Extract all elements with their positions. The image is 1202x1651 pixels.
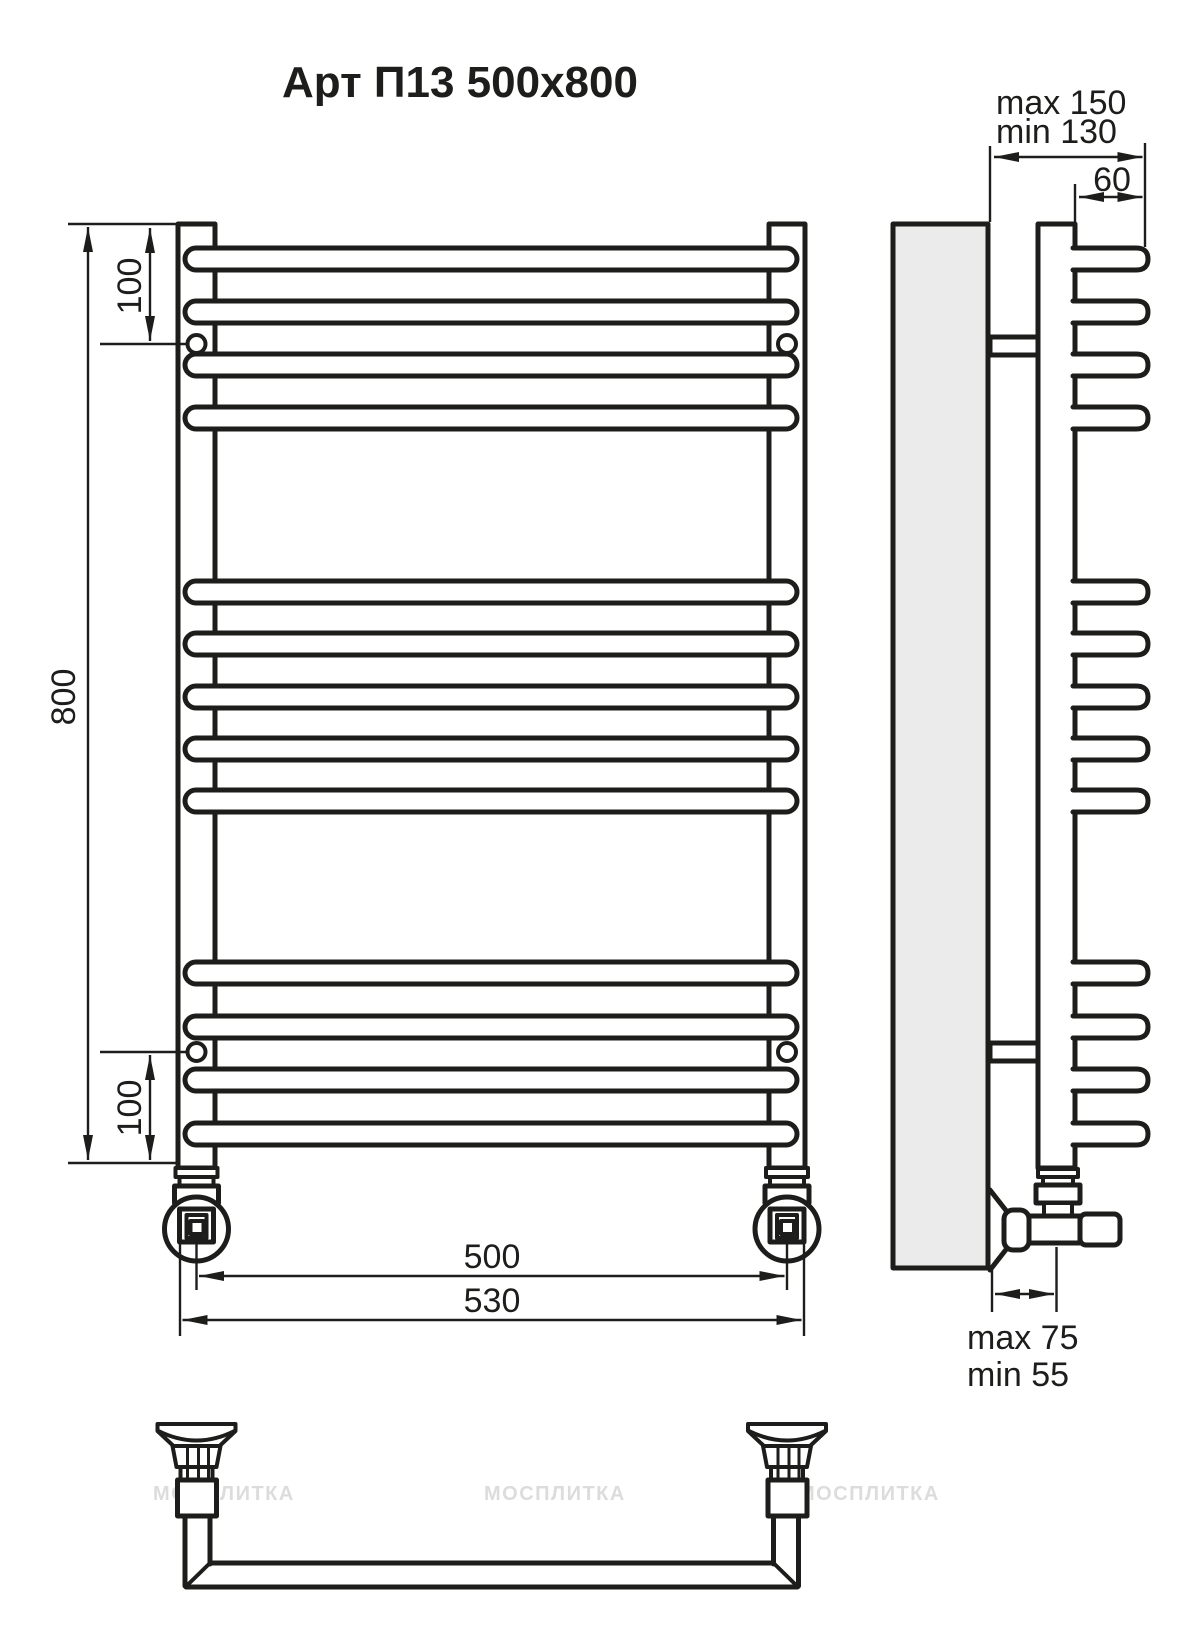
dim-axis-label: 500	[464, 1238, 521, 1276]
escutcheon-slant-bottom	[990, 1247, 1008, 1270]
front-bar	[185, 633, 797, 655]
bv-valve	[173, 1446, 221, 1467]
valve-insert-square	[191, 1221, 204, 1234]
dim-height-label: 800	[45, 669, 83, 726]
side-bar-fill	[1064, 248, 1148, 270]
front-bar	[185, 248, 797, 270]
valve-insert-square	[781, 1221, 794, 1234]
side-valve-nut	[1036, 1185, 1080, 1203]
side-view	[893, 224, 1148, 1270]
bv-miter	[774, 1563, 797, 1585]
side-bar-fill	[1064, 1123, 1148, 1145]
mount-hole-bottom-left	[188, 1043, 206, 1061]
front-bar	[185, 354, 797, 376]
front-bar	[185, 962, 797, 984]
front-bar	[185, 1123, 797, 1145]
front-bar	[185, 301, 797, 323]
bv-valve	[763, 1446, 811, 1467]
front-bar	[185, 407, 797, 429]
wall-bracket-bottom	[990, 1043, 1040, 1061]
mount-hole-bottom-right	[778, 1043, 796, 1061]
side-bar-fill	[1064, 962, 1148, 984]
front-bars	[185, 248, 797, 1145]
escutcheon-face	[1004, 1210, 1029, 1250]
side-bar-fill	[1064, 301, 1148, 323]
side-bar-fill	[1064, 407, 1148, 429]
mount-hole-top-left	[188, 335, 206, 353]
front-bar	[185, 686, 797, 708]
dim-bottom-offset-label: 100	[111, 1080, 149, 1137]
side-bar-fill	[1064, 738, 1148, 760]
side-valve-body	[1027, 1216, 1080, 1243]
mount-hole-top-right	[778, 335, 796, 353]
side-bar-fill	[1064, 790, 1148, 812]
front-bar	[185, 1069, 797, 1091]
dim-overall-label: 530	[464, 1282, 521, 1320]
watermark-right: МОСПЛИТКА	[798, 1483, 940, 1505]
front-bar	[185, 790, 797, 812]
watermark-left: МОСПЛИТКА	[153, 1483, 295, 1505]
page-title: Арт П13 500x800	[282, 58, 638, 107]
bottom-view: МОСПЛИТКА МОСПЛИТКА МОСПЛИТКА	[153, 1424, 940, 1587]
side-bar-fill	[1064, 354, 1148, 376]
front-bar	[185, 1016, 797, 1038]
side-bar-fill	[1064, 633, 1148, 655]
dim-valve-min-label: min 55	[967, 1356, 1069, 1394]
escutcheon-slant-top	[990, 1190, 1008, 1213]
side-bar-fill	[1064, 1016, 1148, 1038]
technical-drawing: Арт П13 500x800 МОСПЛИТ	[0, 0, 1202, 1651]
dim-top-offset-label: 100	[111, 258, 149, 315]
dim-valve-max-label: max 75	[967, 1319, 1079, 1357]
side-bar-fill	[1064, 686, 1148, 708]
side-bar-fill	[1064, 1069, 1148, 1091]
front-bar	[185, 581, 797, 603]
side-bar-fill	[1064, 581, 1148, 603]
dim-wall-min-label: min 130	[996, 113, 1117, 151]
wall	[893, 224, 988, 1268]
watermark-center: МОСПЛИТКА	[484, 1483, 626, 1505]
front-view	[165, 224, 820, 1261]
front-bar	[185, 738, 797, 760]
bv-block	[178, 1480, 217, 1516]
dim-bar-depth-label: 60	[1093, 161, 1131, 199]
wall-bracket-top	[990, 337, 1040, 355]
bv-block	[768, 1480, 807, 1516]
side-valve-handle	[1080, 1214, 1120, 1245]
bv-miter	[188, 1563, 211, 1585]
side-valve	[990, 1169, 1120, 1270]
